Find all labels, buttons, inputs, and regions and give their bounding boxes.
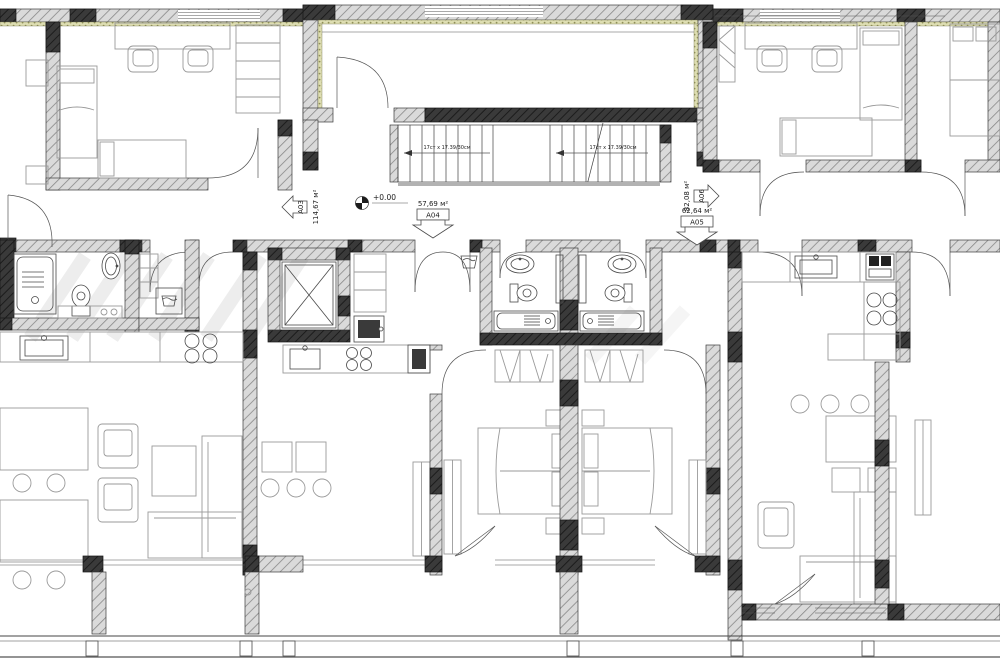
- sink-icon: [608, 255, 636, 273]
- coffee-table: [152, 446, 196, 496]
- bedroom-bottom-right: [560, 345, 720, 575]
- apartment-id: A06: [698, 189, 706, 203]
- double-bed: [582, 428, 672, 514]
- kitchen-sink-icon: [20, 336, 68, 361]
- corridor-annotations: +0.00 A03 114,67 м² 57,69 м² A04 62,64 м…: [282, 181, 719, 245]
- elevator-icon: [268, 248, 350, 342]
- fridge-icon: [866, 254, 894, 280]
- stove-icon: [867, 293, 897, 325]
- nightstand: [582, 410, 604, 426]
- apartment-area: 114,67 м²: [312, 189, 320, 224]
- bedrooms-top-right: [703, 22, 1000, 216]
- toilet-icon: [605, 284, 632, 302]
- living-right: [742, 362, 1000, 620]
- elevation-marker: +0.00: [356, 193, 409, 210]
- floor-plan-canvas: 17ст x 17.39/30см 17ст x 17.39/30см: [0, 0, 1000, 666]
- stove-icon: [347, 348, 372, 371]
- bathtub-icon: [494, 311, 558, 331]
- toilet-icon: [72, 285, 90, 316]
- apartment-area: 57,69 м²: [418, 200, 449, 208]
- double-bed: [478, 428, 568, 514]
- sofa-left: [148, 436, 242, 558]
- bedroom-bottom-left: [430, 345, 568, 575]
- elevation-value: +0.00: [373, 193, 396, 202]
- apartment-area: 82,08 м²: [683, 181, 691, 212]
- sink-icon: [102, 253, 120, 279]
- apartment-id: A04: [426, 212, 440, 220]
- apartment-label-a05: 62,64 м² A05: [677, 207, 717, 245]
- living-kitchen-mid: [261, 345, 430, 556]
- stair-note-2: 17ст x 17.39/30см: [589, 145, 636, 151]
- toilet-icon: [510, 284, 537, 302]
- kitchen-sink-icon: [290, 346, 320, 369]
- staircase: 17ст x 17.39/30см 17ст x 17.39/30см: [390, 123, 671, 186]
- apartment-label-a04: 57,69 м² A04: [413, 200, 453, 238]
- bedroom-top-left: [8, 22, 292, 247]
- kitchen-sink-icon: [795, 255, 837, 278]
- nightstand: [582, 518, 604, 534]
- railing-posts: [86, 641, 874, 656]
- apartment-id: A05: [690, 219, 704, 227]
- apartment-label-a03: A03 114,67 м²: [282, 189, 320, 224]
- hall-closet: [354, 254, 386, 342]
- corridor-wall-band: [0, 238, 1000, 296]
- apartment-id: A03: [297, 200, 305, 214]
- sink-icon: [506, 255, 534, 273]
- stair-note-1: 17ст x 17.39/30см: [423, 145, 470, 151]
- sliding-wardrobe: [719, 26, 735, 82]
- dining-table: [0, 408, 88, 589]
- floor-plan: 17ст x 17.39/30см 17ст x 17.39/30см: [0, 0, 1000, 666]
